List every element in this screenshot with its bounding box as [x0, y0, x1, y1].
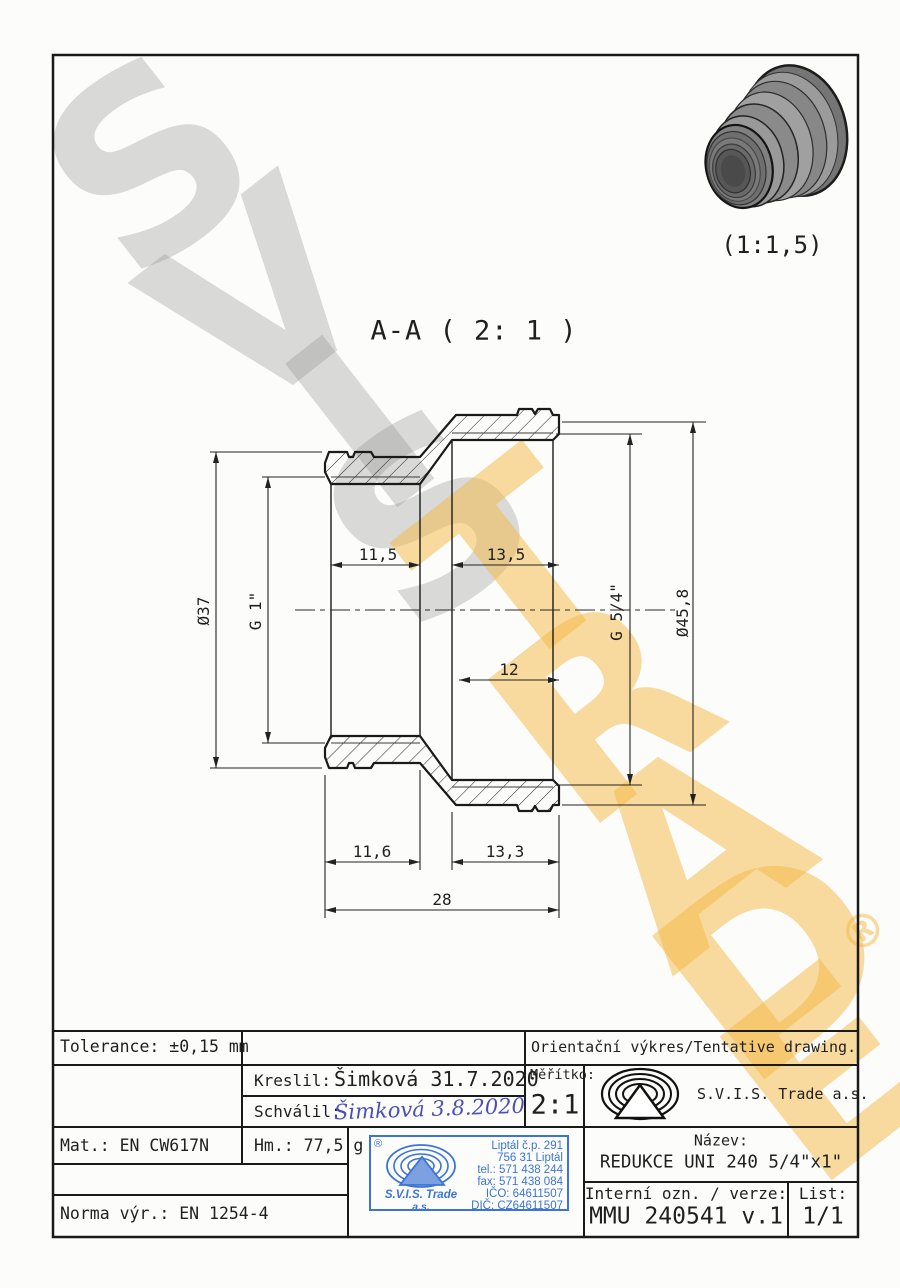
dim-top-right: 13,5: [487, 547, 526, 563]
meritko-label: Měřítko:: [530, 1069, 595, 1083]
drawing-sheet: S V I S T R A D E ®: [0, 0, 900, 1288]
weight-field: Hm.: 77,5 g: [254, 1138, 363, 1155]
tolerance-field: Tolerance: ±0,15 mm: [60, 1039, 249, 1056]
section-view-title: A-A ( 2: 1 ): [370, 318, 577, 345]
stamp-tel: tel.: 571 438 244: [477, 1165, 563, 1177]
stamp-address2: 756 31 Liptál: [497, 1153, 563, 1165]
stamp-dic: DIČ: CZ64611507: [471, 1201, 563, 1213]
stamp-address1: Liptál č.p. 291: [491, 1141, 563, 1153]
nazev-value: REDUKCE UNI 240 5/4"x1": [600, 1154, 842, 1172]
list-value: 1/1: [802, 1206, 844, 1229]
dim-right-thread: G 5/4": [609, 583, 625, 641]
dim-left-outer-diameter: Ø37: [196, 597, 212, 626]
company-logo-icon: [602, 1069, 678, 1119]
kreslil-label: Kreslil:: [254, 1073, 331, 1089]
stamp-fax: fax: 571 438 084: [477, 1177, 563, 1189]
interni-value: MMU 240541 v.1: [589, 1206, 783, 1229]
stamp-company-line1: S.V.I.S. Trade: [385, 1190, 457, 1202]
stamp-ico: IČO: 64611507: [486, 1189, 563, 1201]
company-name: S.V.I.S. Trade a.s.: [697, 1087, 869, 1102]
material-field: Mat.: EN CW617N: [60, 1138, 209, 1155]
stamp-company-line2: a.s.: [412, 1202, 430, 1213]
dim-mid-right: 12: [499, 662, 518, 678]
dim-bottom-left: 11,6: [353, 844, 392, 860]
dim-right-outer-diameter: Ø45,8: [675, 589, 691, 637]
schvalil-label: Schválil:: [254, 1104, 341, 1120]
nazev-label: Název:: [694, 1134, 748, 1149]
interni-label: Interní ozn. / verze:: [585, 1186, 787, 1202]
kreslil-value: Šimková 31.7.2020: [334, 1069, 539, 1089]
dimension-arrows: [213, 422, 696, 913]
dimension-lines: [210, 422, 706, 918]
meritko-value: 2:1: [531, 1092, 580, 1119]
dim-left-thread: G 1": [248, 592, 264, 631]
dim-overall-length: 28: [432, 892, 451, 908]
view3d-scale-label: (1:1,5): [721, 233, 822, 257]
orientation-note: Orientační výkres/Tentative drawing.: [531, 1040, 856, 1055]
part-3d-view: [686, 54, 861, 218]
dim-top-left: 11,5: [359, 547, 398, 563]
dim-bottom-right: 13,3: [486, 844, 525, 860]
list-label: List:: [799, 1186, 847, 1202]
standard-field: Norma výr.: EN 1254-4: [60, 1206, 269, 1223]
stamp-registered-icon: ®: [374, 1139, 382, 1150]
